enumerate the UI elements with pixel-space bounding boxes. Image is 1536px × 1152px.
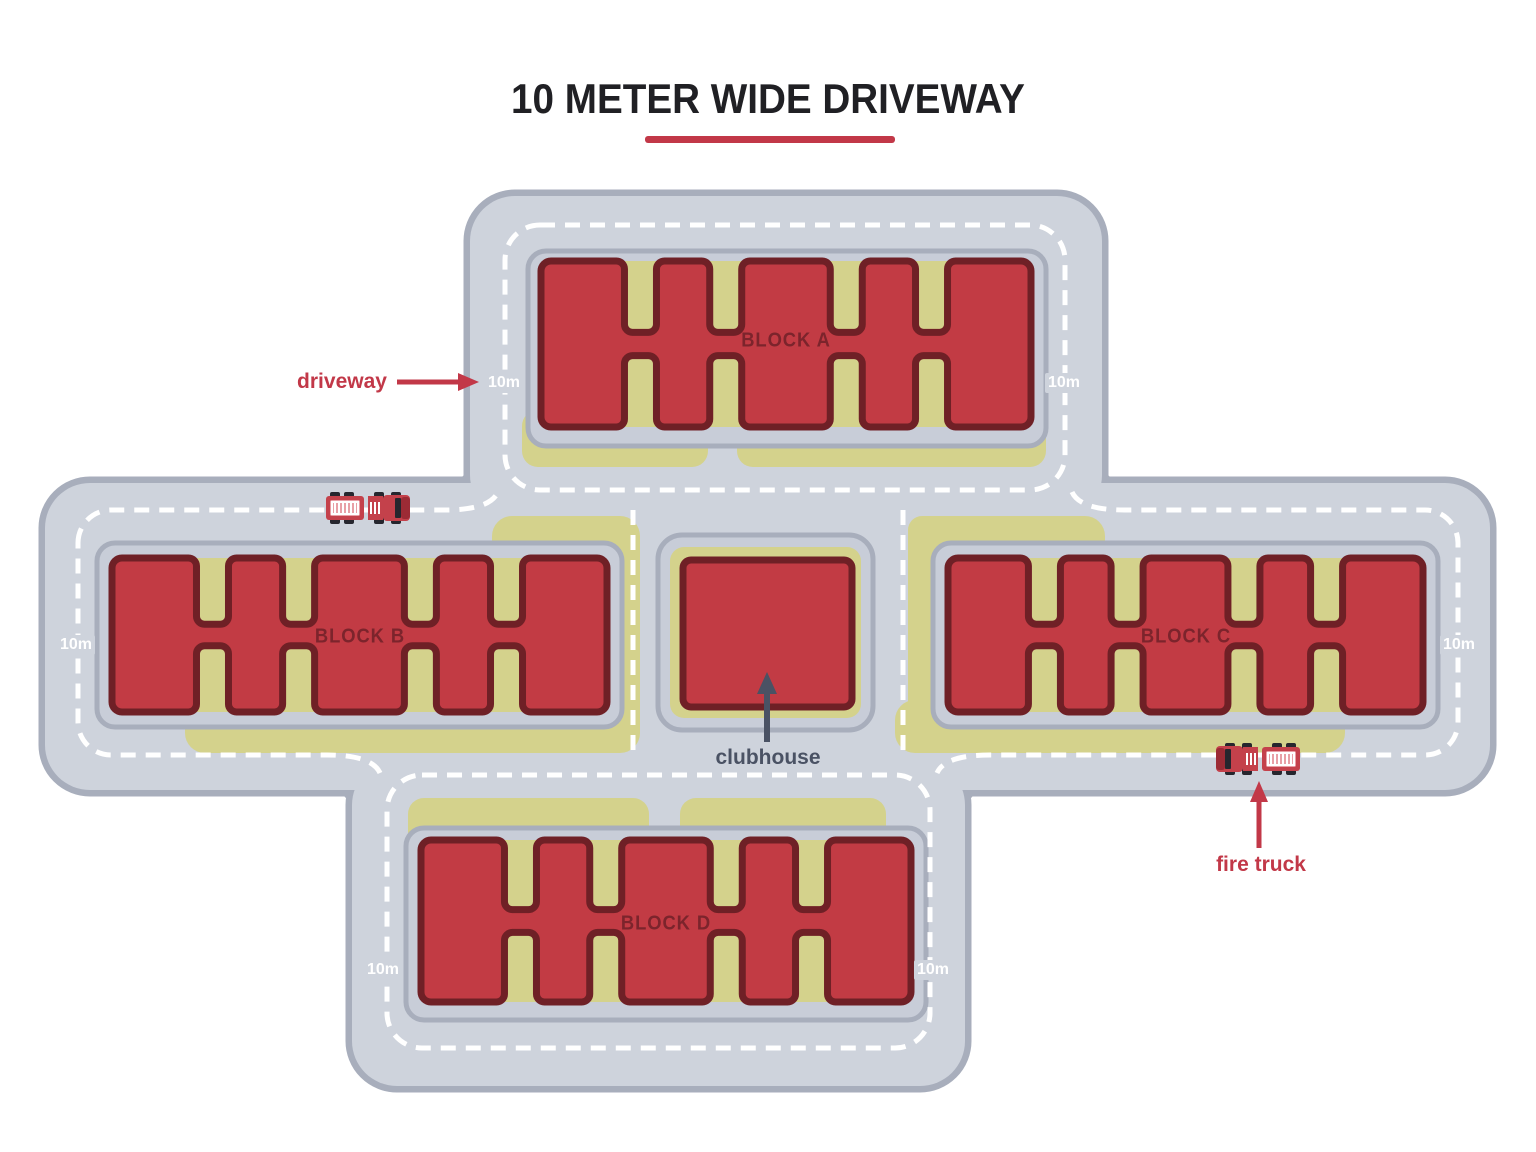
distance-label-top-right: 10m: [1045, 373, 1083, 393]
block-c-label: BLOCK C: [1141, 626, 1231, 649]
distance-label-bottom-left: 10m: [364, 960, 402, 980]
title-underline: [645, 136, 895, 143]
distance-label-mid-left: 10m: [57, 635, 95, 655]
block-b-label: BLOCK B: [315, 626, 405, 649]
fire-truck-label: fire truck: [1216, 853, 1306, 877]
block-a-label: BLOCK A: [741, 330, 831, 353]
distance-label-bottom-right: 10m: [914, 960, 952, 980]
fire-truck-right: [1216, 743, 1300, 775]
page-title: 10 METER WIDE DRIVEWAY: [511, 75, 1025, 123]
distance-label-top-left: 10m: [485, 373, 523, 393]
block-d-label: BLOCK D: [621, 913, 711, 936]
distance-label-mid-right: 10m: [1440, 635, 1478, 655]
diagram-canvas: [0, 0, 1536, 1152]
driveway-diagram: 10 METER WIDE DRIVEWAY driveway fire tru…: [0, 0, 1536, 1152]
clubhouse-label: clubhouse: [715, 746, 820, 770]
driveway-label: driveway: [297, 370, 387, 394]
fire-truck-left: [326, 492, 410, 524]
